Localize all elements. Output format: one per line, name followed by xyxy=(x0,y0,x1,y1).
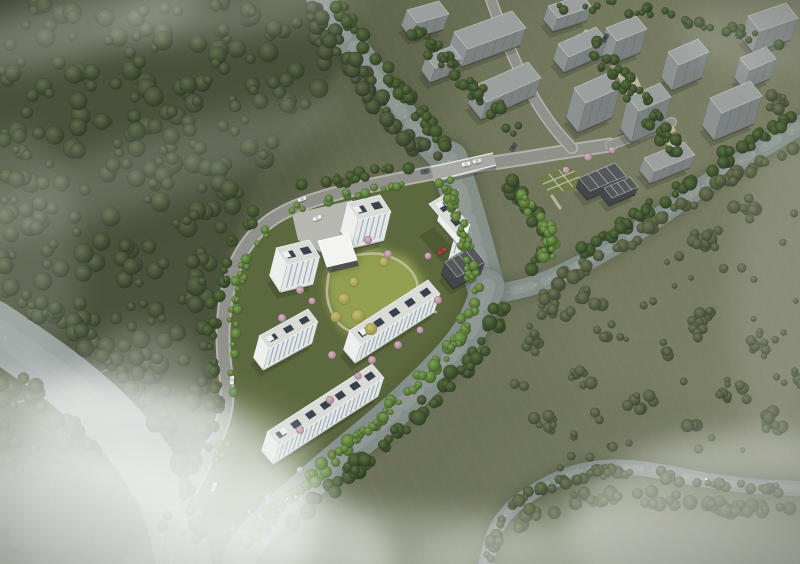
site-aerial-rendering xyxy=(0,0,800,564)
aerial-rendering-canvas xyxy=(0,0,800,564)
vignette-overlay xyxy=(0,0,800,564)
